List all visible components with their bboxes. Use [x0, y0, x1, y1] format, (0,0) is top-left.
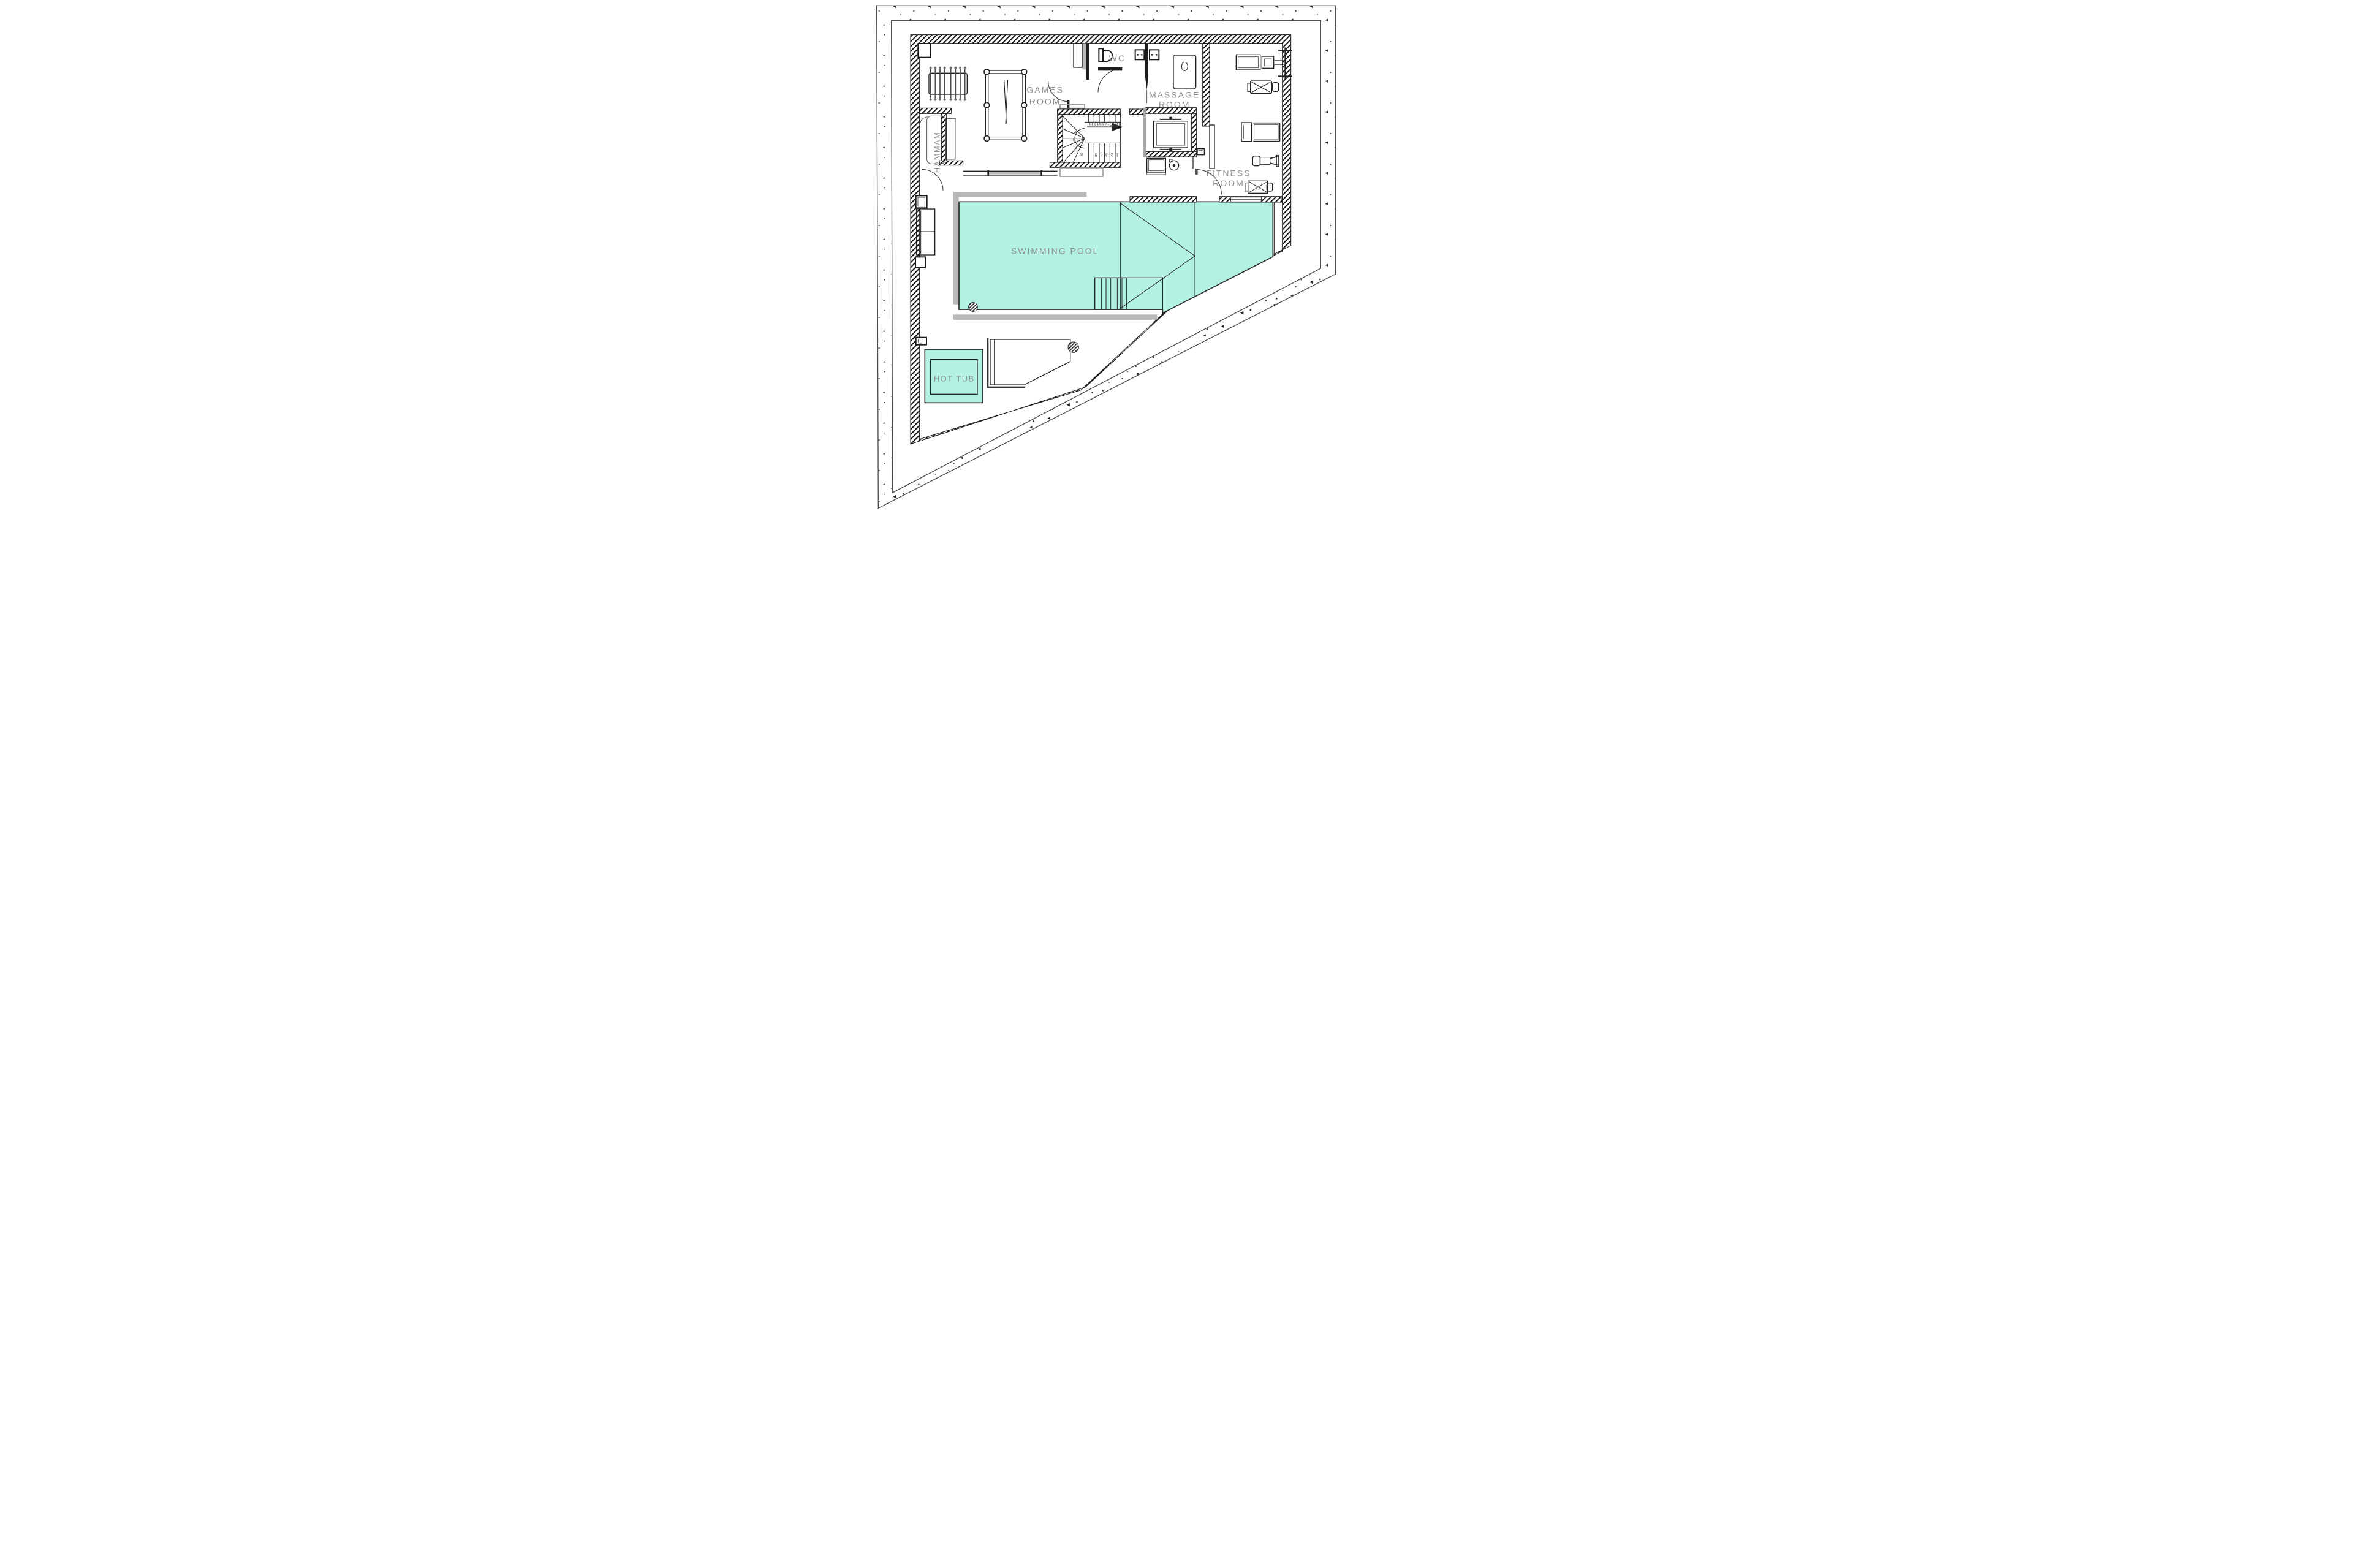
wall-stub — [1192, 157, 1194, 169]
column — [969, 303, 978, 312]
sink — [1135, 50, 1145, 59]
corner-closet — [918, 44, 931, 58]
svg-text:15: 15 — [1110, 121, 1115, 127]
svg-text:12: 12 — [1094, 121, 1099, 127]
svg-text:5: 5 — [1095, 153, 1097, 158]
hot-tub: HOT TUB — [925, 349, 983, 403]
fitness-room-label: ROOM — [1213, 178, 1245, 188]
massage-room-label: MASSAGE — [1149, 89, 1200, 99]
svg-text:8: 8 — [1073, 137, 1075, 143]
hammam-label: HAMMAM — [933, 132, 941, 173]
column — [1068, 342, 1078, 352]
fitness-room-label: FITNESS — [1206, 168, 1251, 178]
svg-text:11: 11 — [1089, 121, 1094, 127]
svg-text:14: 14 — [1104, 121, 1110, 127]
wall-liner — [1082, 44, 1086, 70]
games-room-label: ROOM — [1029, 97, 1061, 107]
games-room-label: GAMES — [1026, 85, 1064, 95]
pool-window — [1230, 197, 1261, 202]
svg-text:6: 6 — [1080, 151, 1083, 157]
svg-text:4: 4 — [1099, 153, 1102, 158]
svg-text:13: 13 — [1099, 121, 1105, 127]
pool-label: SWIMMING POOL — [1011, 246, 1099, 256]
svg-text:10: 10 — [1076, 128, 1082, 134]
floor-plan-drawing: SWIMMING POOL — [784, 0, 1569, 523]
svg-text:1: 1 — [1116, 153, 1118, 158]
window — [988, 172, 1040, 175]
svg-text:3: 3 — [1105, 153, 1108, 158]
floor-plan-page: SWIMMING POOL — [784, 0, 1569, 523]
hot-tub-label: HOT TUB — [934, 375, 975, 384]
svg-text:2: 2 — [1111, 153, 1113, 158]
sink — [1150, 50, 1159, 59]
svg-text:16: 16 — [1115, 121, 1121, 127]
svg-text:7: 7 — [1075, 145, 1077, 150]
wc-label: WC — [1109, 53, 1126, 63]
